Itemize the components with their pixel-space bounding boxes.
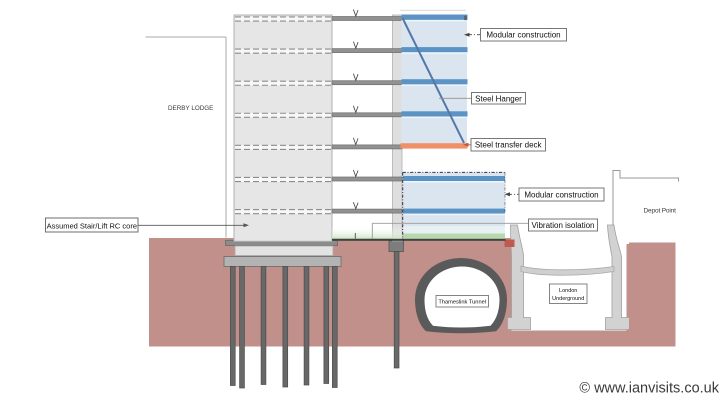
- svg-text:Modular construction: Modular construction: [486, 31, 560, 40]
- svg-text:Steel Hanger: Steel Hanger: [475, 94, 522, 103]
- svg-text:London: London: [559, 288, 577, 294]
- svg-text:Vibration isolation: Vibration isolation: [531, 221, 594, 230]
- svg-text:© www.ianvisits.co.uk: © www.ianvisits.co.uk: [579, 381, 719, 397]
- svg-text:Underground: Underground: [552, 296, 584, 302]
- svg-text:Depot Point: Depot Point: [644, 208, 677, 215]
- svg-text:Assumed Stair/Lift RC core: Assumed Stair/Lift RC core: [47, 221, 137, 230]
- svg-text:DERBY LODGE: DERBY LODGE: [168, 105, 213, 112]
- svg-text:Thameslink Tunnel: Thameslink Tunnel: [438, 300, 486, 306]
- svg-text:Modular construction: Modular construction: [524, 190, 598, 199]
- svg-text:Steel transfer deck: Steel transfer deck: [475, 141, 543, 150]
